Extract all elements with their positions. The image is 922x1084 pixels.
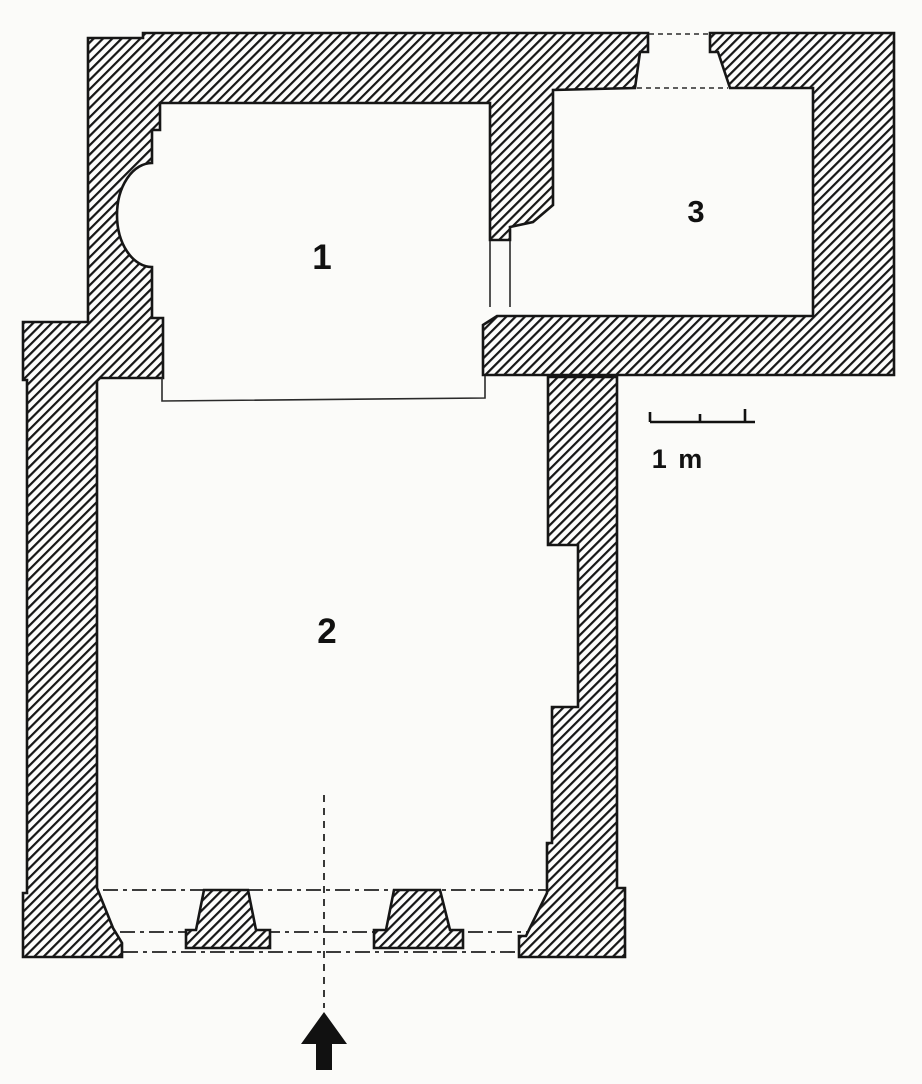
room1-room2-step-line: [162, 376, 485, 401]
room-2-label: 2: [317, 612, 336, 651]
scale-bar: 1 m: [650, 409, 755, 474]
floor-plan-drawing: 1 m 1 2 3: [0, 0, 922, 1084]
portico-pier-east: [374, 890, 463, 948]
entrance-arrow: [301, 1012, 347, 1070]
room-3-label: 3: [687, 194, 704, 229]
wall-room2-east: [519, 377, 625, 957]
floor-plan-page: 1 m 1 2 3: [0, 0, 922, 1084]
scale-bar-label: 1 m: [652, 444, 705, 474]
portico-pier-west: [186, 890, 270, 948]
room-1-label: 1: [312, 238, 331, 277]
scale-bar-line: [650, 409, 755, 422]
